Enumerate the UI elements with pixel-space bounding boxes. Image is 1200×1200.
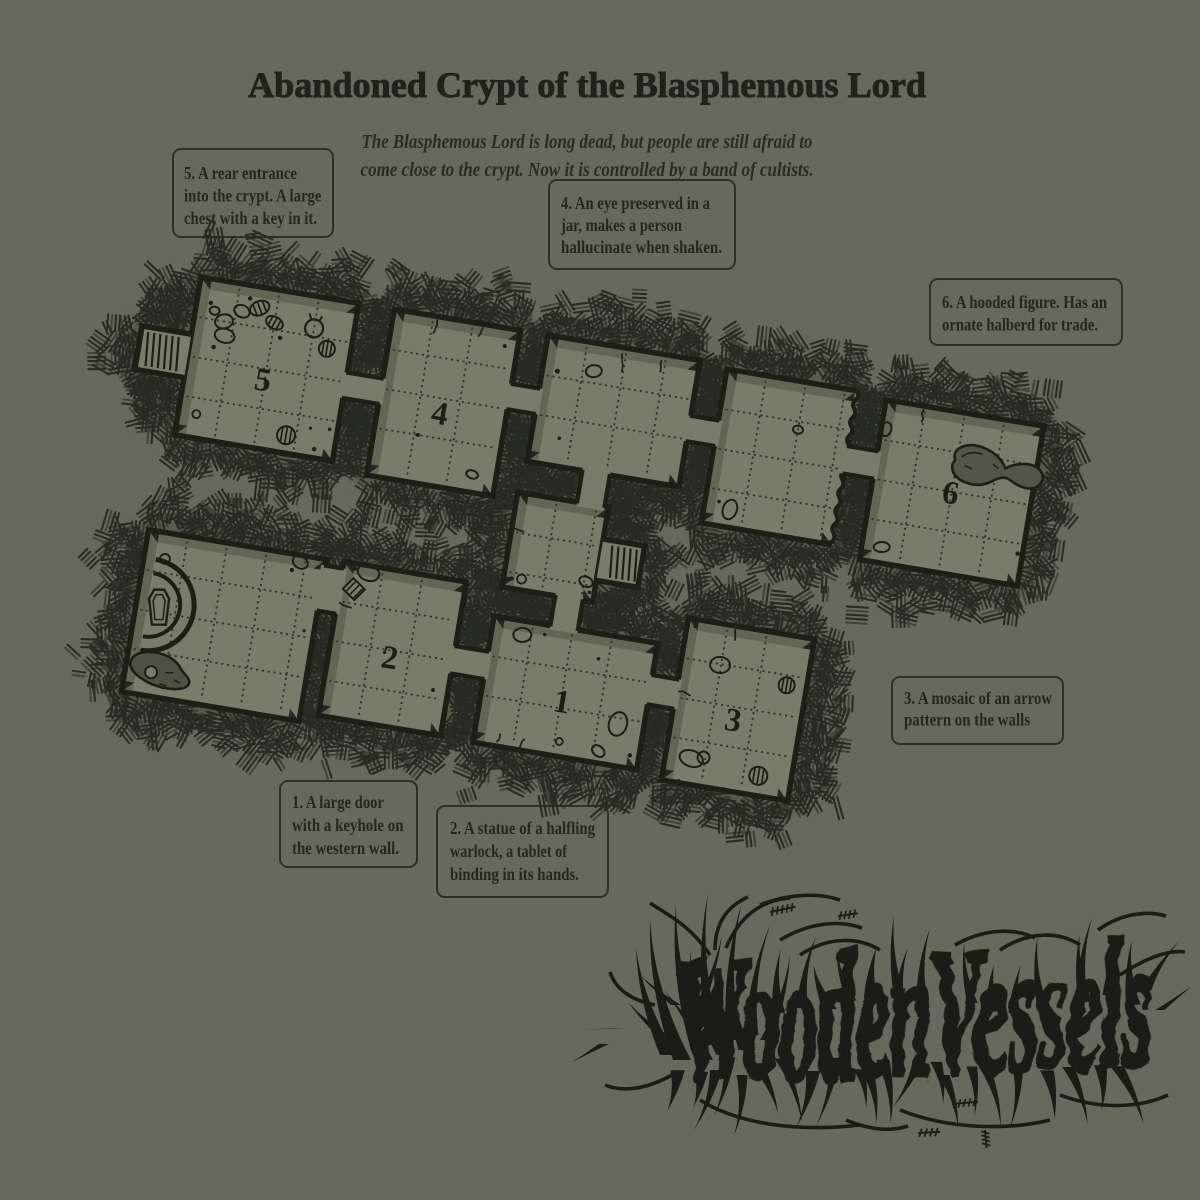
svg-text:6. A hooded figure. Has an: 6. A hooded figure. Has an (942, 292, 1107, 312)
svg-text:Abandoned Crypt of the Blasphe: Abandoned Crypt of the Blasphemous Lord (248, 65, 926, 105)
svg-text:jar, makes a person: jar, makes a person (560, 215, 682, 235)
svg-text:hallucinate when shaken.: hallucinate when shaken. (561, 237, 722, 257)
svg-text:The Blasphemous Lord is long d: The Blasphemous Lord is long dead, but p… (362, 132, 813, 153)
svg-text:4. An eye preserved in a: 4. An eye preserved in a (561, 193, 710, 213)
svg-text:pattern on the walls: pattern on the walls (904, 710, 1030, 730)
svg-text:binding in its hands.: binding in its hands. (450, 864, 579, 884)
svg-text:2. A statue of a halfling: 2. A statue of a halfling (450, 818, 595, 838)
svg-text:the western wall.: the western wall. (292, 838, 399, 858)
svg-text:1. A large door: 1. A large door (292, 792, 384, 812)
svg-text:with a keyhole on: with a keyhole on (292, 815, 404, 835)
svg-text:ornate halberd for trade.: ornate halberd for trade. (942, 315, 1098, 335)
svg-text:5. A rear entrance: 5. A rear entrance (184, 163, 297, 183)
svg-text:come close to the crypt. Now i: come close to the crypt. Now it is contr… (361, 160, 814, 181)
svg-text:3. A mosaic of an arrow: 3. A mosaic of an arrow (904, 688, 1052, 708)
svg-text:chest with a key in it.: chest with a key in it. (184, 208, 317, 228)
svg-text:warlock, a tablet of: warlock, a tablet of (450, 841, 567, 861)
svg-text:into the crypt. A large: into the crypt. A large (184, 186, 322, 206)
